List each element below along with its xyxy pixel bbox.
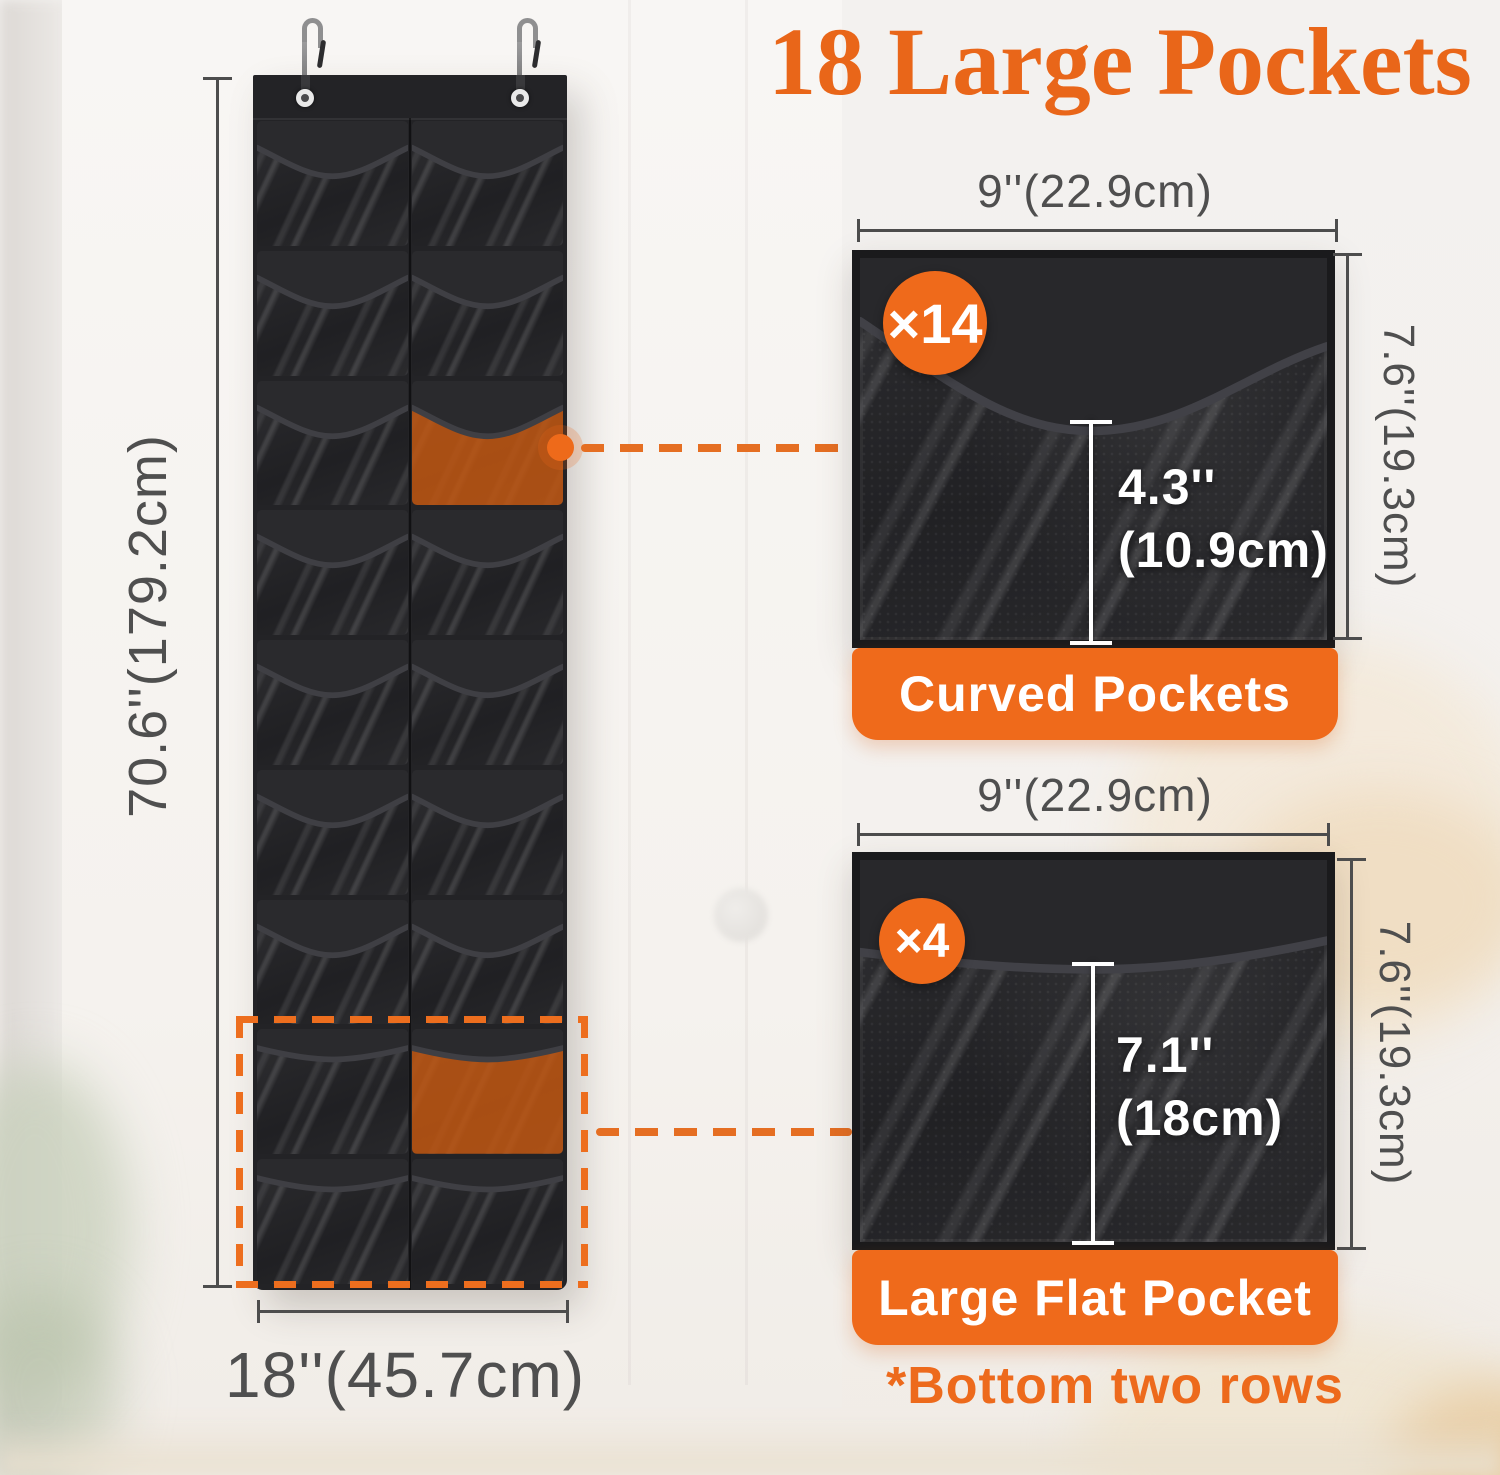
door-edge-line — [628, 0, 631, 1385]
curved-pockets-banner: Curved Pockets — [852, 648, 1338, 740]
flat-depth-inches: 7.1'' — [1116, 1026, 1214, 1084]
organizer-pocket — [412, 770, 563, 895]
flat-count-badge: ×4 — [879, 898, 965, 984]
curved-panel-height-label: 7.6''(19.3cm) — [1368, 236, 1428, 676]
flat-depth-cm: (18cm) — [1116, 1089, 1283, 1147]
curved-depth-cm: (10.9cm) — [1118, 521, 1329, 579]
organizer-pocket-highlighted — [412, 381, 563, 506]
curved-count-badge: ×14 — [883, 271, 987, 375]
organizer-pocket — [257, 381, 408, 506]
organizer-pocket — [412, 900, 563, 1025]
flat-depth-line — [1091, 962, 1095, 1245]
organizer-pocket — [412, 121, 563, 246]
page-title: 18 Large Pockets — [740, 6, 1500, 117]
organizer-height-label: 70.6''(179.2cm) — [118, 366, 178, 886]
callout-dashed-line — [581, 444, 852, 452]
dashed-edge — [236, 1281, 588, 1288]
bottom-rows-dashed-outline — [236, 1016, 588, 1288]
organizer-pocket — [412, 251, 563, 376]
organizer-pocket — [257, 770, 408, 895]
dashed-edge — [236, 1016, 243, 1288]
flat-panel-width-label: 9''(22.9cm) — [845, 768, 1345, 822]
door-edge-line — [745, 0, 748, 1385]
organizer-width-label: 18''(45.7cm) — [155, 1338, 655, 1412]
organizer-pocket — [257, 510, 408, 635]
flat-panel-width-line — [857, 833, 1330, 836]
organizer-pocket — [257, 640, 408, 765]
grommet — [296, 89, 314, 107]
curved-panel-width-label: 9''(22.9cm) — [845, 164, 1345, 218]
organizer-pocket — [257, 900, 408, 1025]
flat-panel-height-line — [1350, 858, 1353, 1250]
curved-depth-line — [1089, 420, 1093, 645]
dashed-edge — [581, 1016, 588, 1288]
flat-pocket-banner: Large Flat Pocket — [852, 1250, 1338, 1345]
width-dimension-line — [257, 1310, 569, 1313]
organizer-pocket — [412, 510, 563, 635]
flat-panel-height-label: 7.6''(19.3cm) — [1364, 833, 1424, 1273]
curved-depth-inches: 4.3'' — [1118, 458, 1216, 516]
product-infographic: 70.6''(179.2cm) 18''(45.7cm) 18 Large Po… — [0, 0, 1500, 1475]
door-knob — [714, 888, 768, 942]
organizer-pocket — [257, 121, 408, 246]
dashed-edge — [236, 1016, 588, 1023]
organizer-pocket — [412, 640, 563, 765]
callout-dashed-line — [596, 1128, 852, 1136]
curved-panel-width-line — [857, 229, 1338, 232]
organizer-pocket — [257, 251, 408, 376]
callout-dot — [547, 434, 574, 461]
height-dimension-line — [216, 77, 219, 1288]
footnote: *Bottom two rows — [886, 1356, 1344, 1416]
curved-panel-height-line — [1346, 253, 1349, 640]
background-floor — [0, 1420, 1500, 1475]
grommet — [511, 89, 529, 107]
